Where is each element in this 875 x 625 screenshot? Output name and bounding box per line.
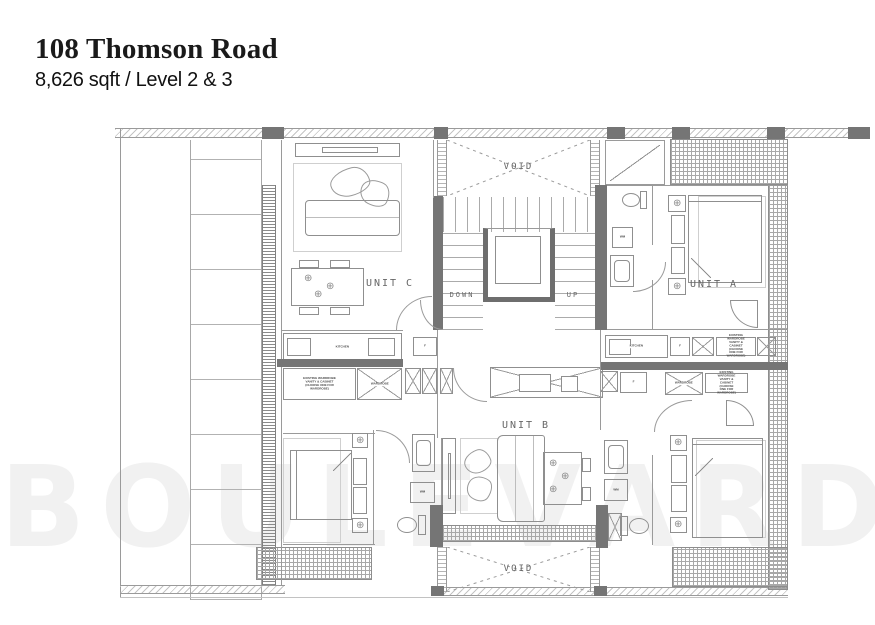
wardrobe-note-text: EXISTING WARDROBE VANITY & CABINET (CHOO…	[727, 334, 746, 358]
toilet-br	[629, 518, 649, 534]
bottom-left-wall	[120, 585, 285, 594]
unit-a-label: UNIT A	[688, 279, 740, 290]
shower-room	[605, 140, 665, 185]
left-party-wall	[262, 185, 276, 585]
fixture-icon: ⊕	[673, 199, 681, 209]
shaft-box	[692, 337, 714, 356]
bath-bl-wall	[373, 430, 374, 545]
fridge-box: F	[413, 337, 437, 356]
void-bottom: VOID	[447, 547, 590, 592]
wardrobe-panel	[353, 487, 367, 514]
corner-seat	[730, 300, 758, 328]
bedroom-br-west-wall	[652, 455, 653, 545]
toilet-tank	[418, 515, 426, 535]
balcony-bottom-left	[256, 547, 372, 580]
column-block	[434, 127, 448, 139]
wardrobe-note-box: EXISTING WARDROBE VANITY & CABINET (CHOO…	[283, 368, 356, 400]
wardrobe-note-box: EXISTING WARDROBE VANITY & CABINET (CHOO…	[705, 373, 748, 393]
wardrobe-panel	[353, 458, 367, 485]
dining-table-unit-b: ⊕ ⊕ ⊕	[543, 452, 582, 505]
shaft-box	[757, 337, 776, 356]
door-arc-unit-b	[453, 368, 487, 402]
bed-fold	[333, 453, 351, 471]
dining-table-unit-c: ⊕ ⊕ ⊕	[291, 268, 364, 306]
left-boundary-line	[120, 128, 121, 598]
fixture-icon: ⊕	[561, 472, 569, 482]
column-block	[848, 127, 870, 139]
dining-chair	[582, 458, 591, 472]
dining-chair	[299, 307, 319, 315]
column-block	[262, 127, 284, 139]
tv-unit-b	[448, 453, 451, 499]
fixture-icon: ⊕	[356, 436, 364, 446]
high-wardrobe: WARDROBE	[665, 372, 703, 395]
dining-chair	[330, 307, 350, 315]
bed-pillow-line	[693, 439, 762, 445]
page: { "header": { "title": "108 Thomson Road…	[0, 0, 875, 625]
fridge-box: F	[620, 372, 647, 393]
unit-c-label: UNIT C	[362, 278, 418, 289]
kitchen-label: KITCHEN	[629, 345, 643, 348]
wm-label: WM	[417, 491, 429, 494]
fixture-icon: ⊕	[314, 290, 322, 300]
fixture-icon: ⊕	[549, 459, 557, 469]
unit-a-north-wall	[605, 185, 788, 186]
left-ladder-structure	[190, 140, 262, 600]
wardrobe-label: WARDROBE	[370, 382, 389, 385]
stair-up-label: UP	[558, 291, 588, 299]
wm-label: WM	[618, 236, 628, 239]
lift-shaft	[483, 228, 555, 302]
fridge-label: F	[420, 345, 431, 348]
shaft-box	[422, 368, 437, 394]
basin-bowl	[416, 440, 431, 466]
fridge-label: F	[627, 381, 640, 384]
basin-bl	[412, 434, 435, 472]
door-arc-bedroom-br	[654, 400, 692, 432]
wardrobe-panel	[671, 247, 685, 274]
fixture-icon: ⊕	[674, 438, 682, 448]
lift-door-opening	[523, 291, 545, 297]
low-wardrobe-unit-b	[490, 367, 603, 398]
fancoil-box: ⊕	[670, 517, 687, 533]
column-block	[594, 586, 607, 596]
column-block	[767, 127, 785, 139]
toilet-tank	[640, 191, 647, 209]
wm-label: WM	[611, 488, 622, 491]
corridor-wall-right	[600, 330, 601, 430]
dining-chair	[330, 260, 350, 268]
terrace-top-right	[670, 139, 788, 185]
basin-br	[604, 440, 628, 474]
balcony-edge-unit-b	[442, 525, 600, 542]
fridge-label: F	[676, 345, 685, 348]
shaft-box	[440, 368, 453, 394]
fridge-box: F	[670, 337, 690, 356]
dining-chair	[582, 487, 591, 501]
void-jamb	[437, 140, 447, 196]
high-wardrobe: WARDROBE	[357, 368, 402, 400]
shaft-box	[405, 368, 421, 394]
bedroom-bl-south-wall	[283, 544, 375, 545]
toilet-unit-a	[622, 193, 640, 207]
basin-bowl	[608, 445, 624, 469]
tv-unit-c	[322, 147, 378, 153]
shower-screen	[610, 145, 660, 181]
wardrobe-note-text: EXISTING WARDROBE VANITY & CABINET (CHOO…	[302, 377, 338, 391]
sofa-unit-c	[305, 200, 400, 236]
unit-a-inner-wall	[652, 185, 653, 245]
wall-block	[596, 505, 608, 548]
column-block	[431, 586, 444, 596]
wardrobe-panel	[671, 485, 687, 512]
door-arc-bath-bl	[376, 430, 410, 463]
bed-unit-a	[688, 195, 762, 283]
wardrobe-note-box: EXISTING WARDROBE VANITY & CABINET (CHOO…	[716, 337, 756, 356]
fixture-icon: ⊕	[674, 520, 682, 530]
basin-unit-a	[610, 255, 634, 287]
fixture-icon: ⊕	[326, 282, 334, 292]
foyer-wall	[437, 330, 438, 438]
wm-box: WM	[410, 482, 435, 503]
wm-box: WM	[612, 227, 633, 248]
kitchen-label: KITCHEN	[335, 345, 349, 348]
bath-wall-unit-a	[595, 185, 607, 330]
fancoil-box: ⊕	[352, 433, 368, 448]
dining-chair	[299, 260, 319, 268]
fixture-icon: ⊕	[673, 282, 681, 292]
void-bottom-label: VOID	[447, 564, 590, 574]
balcony-right-strip	[768, 185, 788, 590]
kitchen-counter-left: KITCHEN	[283, 333, 402, 361]
fancoil-box: ⊕	[352, 518, 368, 533]
fixture-icon: ⊕	[304, 274, 312, 284]
bottom-boundary-line	[120, 597, 788, 598]
top-exterior-wall	[115, 128, 870, 138]
balcony-bottom-right	[672, 547, 788, 587]
toilet-bl	[397, 517, 417, 533]
unit-c-east-wall	[433, 140, 434, 198]
corner-seat	[726, 400, 754, 426]
wardrobe-panel	[671, 215, 685, 244]
bed-fold	[695, 458, 713, 476]
bed-bedroom-br	[692, 438, 763, 538]
bed-bedroom-bl	[290, 450, 352, 520]
door-arc-bath-a	[633, 262, 666, 292]
wardrobe-note-text: EXISTING WARDROBE VANITY & CABINET (CHOO…	[716, 371, 737, 395]
floorplan: VOID DOWN UP VOID ⊕ ⊕ ⊕ UNIT C	[0, 0, 875, 625]
fixture-icon: ⊕	[356, 521, 364, 531]
unit-a-inner-wall	[652, 280, 653, 330]
bed-pillow-line	[291, 451, 297, 519]
unit-a-south-wall	[605, 329, 788, 330]
corridor-wall	[281, 330, 403, 331]
basin-bowl	[614, 260, 630, 282]
fixture-icon: ⊕	[549, 485, 557, 495]
wm-box: WM	[604, 479, 628, 501]
kitchen-counter-right: KITCHEN	[605, 335, 668, 358]
wardrobe-drawer	[519, 374, 551, 392]
mid-wall-left	[277, 359, 403, 367]
shaft-box	[600, 371, 618, 392]
bed-fold	[691, 258, 711, 278]
tv-console-unit-b	[442, 438, 456, 514]
void-top: VOID	[447, 140, 590, 196]
stair-flight-top	[443, 197, 595, 232]
fancoil-box: ⊕	[670, 435, 687, 451]
mid-wall-right	[600, 362, 788, 370]
wardrobe-drawer	[561, 376, 578, 392]
stair-flight-right	[555, 232, 595, 330]
lift-car	[495, 236, 541, 284]
fancoil-box: ⊕	[668, 278, 686, 295]
wardrobe-panel	[671, 455, 687, 483]
bed-pillow-line	[689, 196, 761, 202]
stair-flight-left	[443, 232, 483, 330]
void-top-label: VOID	[447, 162, 590, 172]
sofa-unit-b	[497, 435, 545, 522]
wall-block	[430, 505, 443, 547]
fancoil-box: ⊕	[668, 195, 686, 212]
shaft-box	[608, 513, 622, 541]
column-block	[607, 127, 625, 139]
wardrobe-label: WARDROBE	[675, 382, 694, 385]
unit-b-label: UNIT B	[498, 420, 554, 431]
stair-down-label: DOWN	[438, 291, 486, 299]
column-block	[672, 127, 690, 139]
